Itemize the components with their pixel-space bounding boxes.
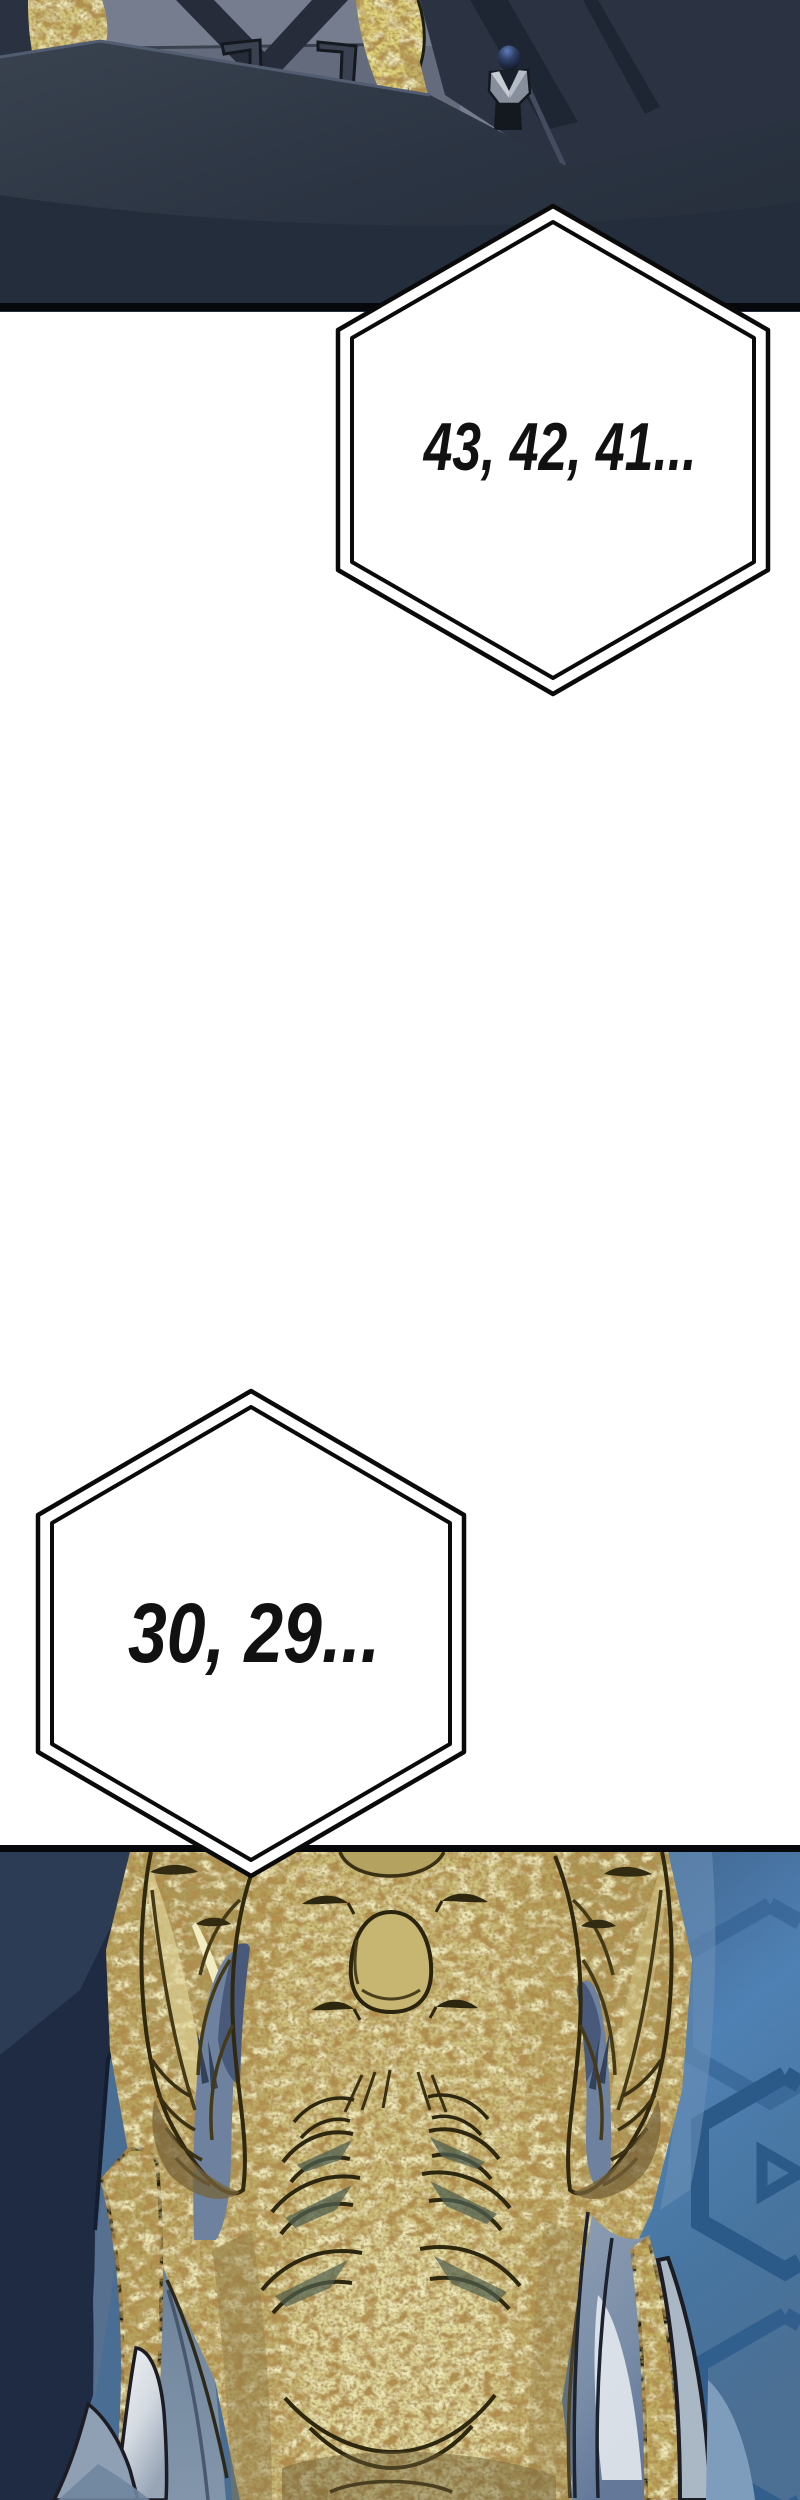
svg-text:43, 42, 41...: 43, 42, 41... bbox=[423, 408, 697, 485]
svg-text:30, 29...: 30, 29... bbox=[128, 1587, 380, 1681]
